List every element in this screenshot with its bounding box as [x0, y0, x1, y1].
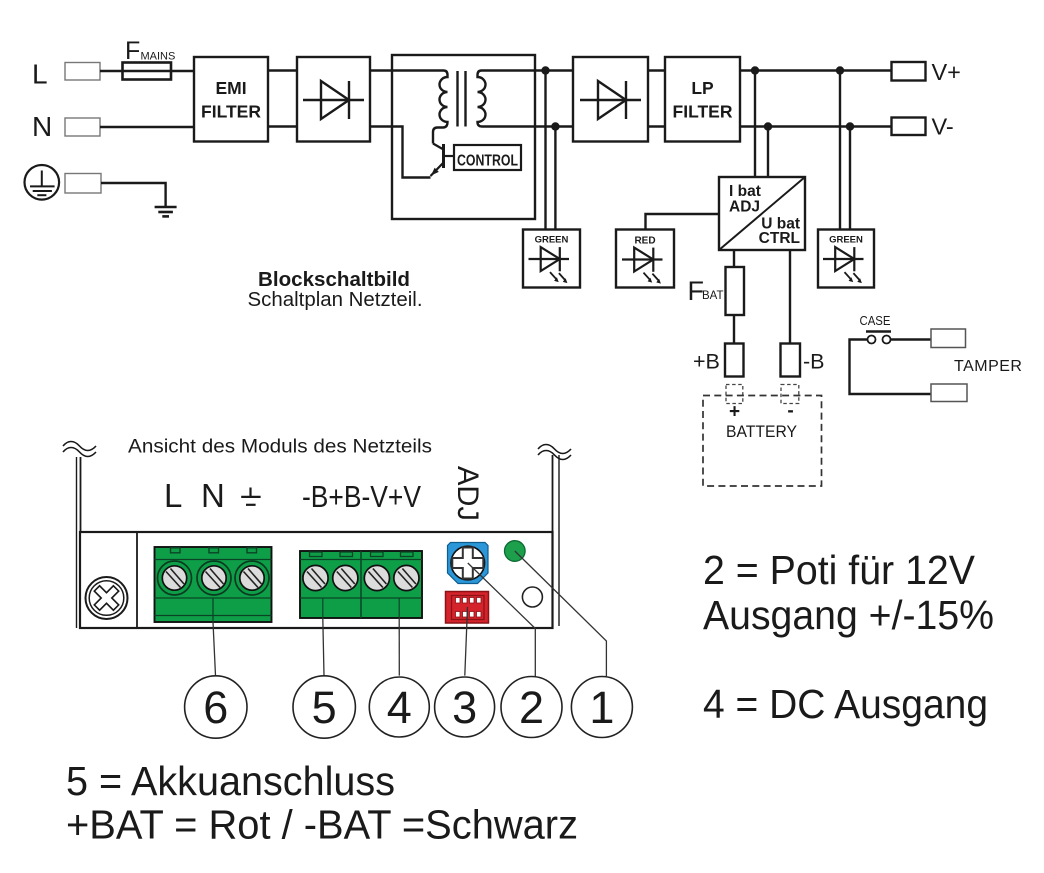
- svg-text:BATTERY: BATTERY: [726, 422, 797, 441]
- svg-text:LP: LP: [691, 78, 714, 98]
- svg-text:RED: RED: [634, 236, 655, 247]
- svg-text:ADJ: ADJ: [451, 466, 484, 521]
- svg-text:2: 2: [519, 682, 544, 733]
- svg-text:Ansicht des Moduls des Netztei: Ansicht des Moduls des Netzteils: [128, 436, 432, 458]
- svg-text:I bat: I bat: [729, 183, 761, 200]
- svg-text:-B+B-V+V: -B+B-V+V: [302, 479, 421, 514]
- svg-text:2 = Poti für 12V: 2 = Poti für 12V: [703, 547, 976, 593]
- svg-text:Blockschaltbild: Blockschaltbild: [258, 269, 410, 291]
- svg-text:4: 4: [387, 682, 412, 733]
- svg-text:5 = Akkuanschluss: 5 = Akkuanschluss: [66, 758, 395, 804]
- svg-text:GREEN: GREEN: [535, 235, 569, 246]
- svg-text:CASE: CASE: [860, 313, 891, 328]
- svg-text:MAINS: MAINS: [141, 51, 176, 63]
- svg-text:Ausgang +/-15%: Ausgang +/-15%: [703, 592, 994, 638]
- svg-text:-B: -B: [803, 350, 825, 374]
- svg-text:CTRL: CTRL: [759, 230, 800, 247]
- svg-text:N: N: [32, 111, 52, 142]
- svg-text:+B: +B: [693, 350, 720, 374]
- svg-text:EMI: EMI: [215, 78, 246, 98]
- svg-text:L: L: [164, 477, 182, 514]
- svg-text:1: 1: [589, 682, 614, 733]
- svg-text:3: 3: [452, 682, 477, 733]
- svg-text:BAT: BAT: [702, 290, 724, 302]
- svg-text:V+: V+: [932, 59, 961, 85]
- svg-text:N: N: [201, 477, 225, 514]
- svg-text:L: L: [32, 59, 48, 90]
- svg-text:GREEN: GREEN: [829, 235, 863, 246]
- svg-text:Schaltplan Netzteil.: Schaltplan Netzteil.: [248, 289, 423, 311]
- svg-text:ADJ: ADJ: [729, 199, 760, 216]
- svg-text:5: 5: [312, 682, 337, 733]
- svg-text:+BAT = Rot / -BAT =Schwarz: +BAT = Rot / -BAT =Schwarz: [66, 802, 578, 848]
- svg-text:F: F: [125, 37, 140, 65]
- svg-text:6: 6: [203, 682, 228, 733]
- svg-text:FILTER: FILTER: [673, 102, 733, 122]
- svg-text:+: +: [729, 402, 740, 423]
- svg-text:4 = DC Ausgang: 4 = DC Ausgang: [703, 681, 988, 727]
- svg-text:TAMPER: TAMPER: [954, 358, 1022, 375]
- svg-text:V-: V-: [932, 114, 954, 140]
- svg-text:CONTROL: CONTROL: [457, 153, 518, 170]
- svg-text:FILTER: FILTER: [201, 102, 261, 122]
- svg-text:-: -: [787, 401, 793, 422]
